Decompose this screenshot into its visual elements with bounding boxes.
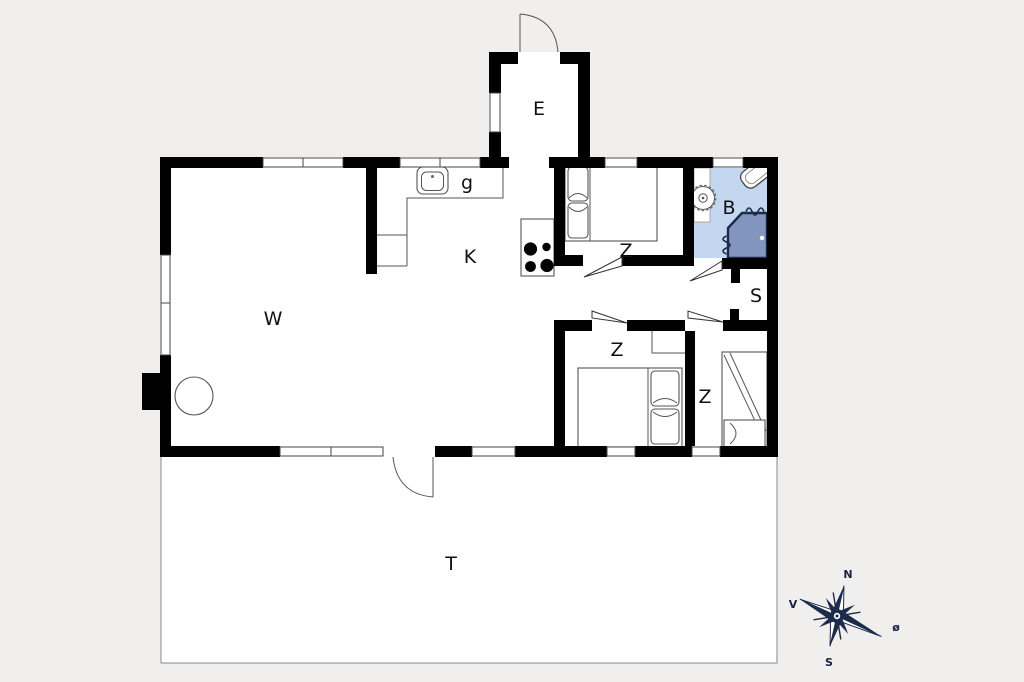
floor-plan-canvas: W K g E Z B S Z Z T [0, 0, 1024, 682]
kitchen-sink-icon [417, 167, 448, 194]
round-table-icon [175, 377, 213, 415]
window-bedroom1 [605, 158, 637, 167]
label-kitchen: K [464, 246, 477, 268]
single-bed [722, 352, 767, 448]
label-bathroom: B [722, 197, 735, 219]
window-bedroom3 [692, 447, 720, 456]
label-entrance: E [533, 98, 545, 120]
label-terrace: T [444, 553, 457, 575]
label-bedroom-2: Z [610, 339, 623, 361]
compass-south-label: S [825, 656, 833, 669]
double-bed-bottom [578, 368, 682, 447]
window-living-left [161, 255, 170, 355]
stove-icon [521, 219, 554, 276]
label-bedroom-1: Z [619, 240, 632, 262]
label-living-room: W [264, 308, 283, 330]
compass-west-label: V [789, 598, 798, 611]
window-bedroom2 [607, 447, 635, 456]
window-bathroom [713, 158, 743, 167]
floor-plan-page: W K g E Z B S Z Z T [0, 0, 1024, 682]
compass-east-label: ø [892, 621, 900, 634]
chimney [142, 373, 162, 410]
shower-drain [760, 236, 764, 240]
label-kitchen-sink-area: g [461, 172, 473, 194]
window-entrance [490, 93, 500, 132]
terrace-area [161, 455, 777, 663]
window-living-bottom-2 [472, 447, 515, 456]
double-bed-top [565, 163, 657, 241]
label-hallway: S [750, 285, 762, 307]
compass-north-label: N [843, 568, 852, 581]
label-bedroom-3: Z [698, 386, 711, 408]
